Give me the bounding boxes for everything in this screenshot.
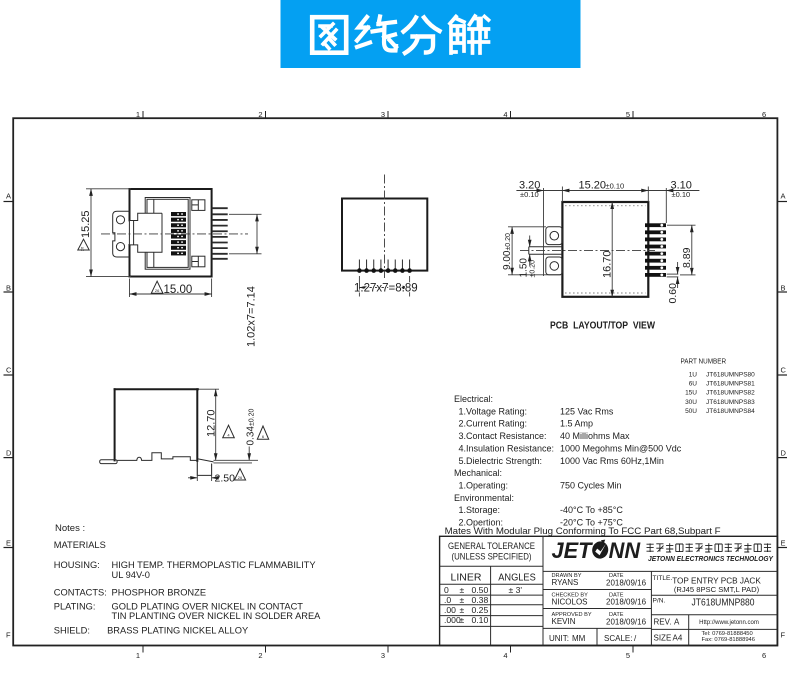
svg-text:±0.10: ±0.10 (606, 182, 625, 191)
svg-text:E: E (781, 539, 786, 548)
svg-text:±0.10: ±0.10 (520, 190, 539, 199)
svg-text:CONTACTS:: CONTACTS: (54, 588, 107, 598)
svg-text:12.70: 12.70 (206, 409, 218, 437)
svg-text:2018/09/16: 2018/09/16 (606, 598, 647, 607)
svg-text:0.10: 0.10 (472, 615, 489, 625)
svg-text:1.5 Amp: 1.5 Amp (560, 419, 593, 429)
svg-text:MATERIALS: MATERIALS (54, 540, 106, 550)
svg-text:1.Voltage Rating:: 1.Voltage Rating: (459, 406, 528, 416)
svg-text:JT618UMNPS84: JT618UMNPS84 (706, 408, 755, 415)
svg-text:16.70: 16.70 (602, 250, 614, 278)
svg-text:TITLE.: TITLE. (653, 575, 673, 582)
svg-text:E: E (6, 539, 11, 548)
svg-text:A: A (781, 192, 786, 201)
svg-text:P/N.: P/N. (653, 598, 666, 605)
svg-text:1: 1 (136, 651, 140, 660)
svg-text:50U: 50U (685, 408, 697, 415)
svg-text:2.Current Rating:: 2.Current Rating: (459, 419, 528, 429)
svg-text:Mates With Modular Plug Confor: Mates With Modular Plug Conforming To FC… (445, 526, 721, 537)
svg-text:4: 4 (503, 110, 507, 119)
svg-text:A: A (674, 618, 680, 627)
svg-text:6: 6 (762, 651, 766, 660)
svg-text:Environmental:: Environmental: (454, 493, 514, 503)
svg-text:JT618UMNPS82: JT618UMNPS82 (706, 390, 755, 397)
svg-text:8.89: 8.89 (681, 247, 693, 268)
svg-text:A4: A4 (673, 634, 683, 643)
svg-text:B: B (781, 284, 786, 293)
svg-text:BRASS PLATING NICKEL ALLOY: BRASS PLATING NICKEL ALLOY (107, 626, 248, 636)
svg-text:5.Dielectric Strength:: 5.Dielectric Strength: (459, 456, 543, 466)
svg-text:JT618UMNPS83: JT618UMNPS83 (706, 399, 755, 406)
svg-text:PHOSPHOR BRONZE: PHOSPHOR BRONZE (112, 588, 207, 598)
svg-text:F: F (6, 631, 11, 640)
svg-text:40 Milliohms Max: 40 Milliohms Max (560, 431, 630, 441)
svg-text:-40°C To +85°C: -40°C To +85°C (560, 505, 623, 515)
svg-text:125 Vac Rms: 125 Vac Rms (560, 406, 614, 416)
svg-text:C: C (6, 366, 12, 375)
svg-text:0.25: 0.25 (472, 605, 489, 615)
svg-text:750 Cycles Min: 750 Cycles Min (560, 480, 622, 490)
svg-text:0: 0 (444, 585, 449, 595)
svg-text:NICOLOS: NICOLOS (552, 598, 588, 607)
svg-text:JETONN ELECTRONICS TECHNOLOGY: JETONN ELECTRONICS TECHNOLOGY (648, 556, 774, 563)
svg-text:15U: 15U (685, 390, 697, 397)
svg-text:Notes :: Notes : (55, 523, 85, 534)
svg-text:JT618UMNPS80: JT618UMNPS80 (706, 372, 755, 379)
svg-text:0.38: 0.38 (472, 595, 489, 605)
svg-text:PCB LAYOUT/TOP VIEW: PCB LAYOUT/TOP VIEW (550, 320, 655, 332)
svg-text:A: A (6, 192, 11, 201)
svg-text:4: 4 (503, 651, 507, 660)
svg-text:±0.20: ±0.20 (530, 260, 537, 278)
svg-text:± 3': ± 3' (509, 585, 523, 595)
svg-text:D: D (781, 449, 787, 458)
svg-text:15.00: 15.00 (164, 284, 193, 296)
svg-text:15.25: 15.25 (80, 210, 92, 238)
svg-text:0.60: 0.60 (667, 283, 679, 304)
svg-text:UL 94V-0: UL 94V-0 (112, 570, 150, 580)
svg-text:3: 3 (381, 110, 385, 119)
svg-text:1.02x7=7.14: 1.02x7=7.14 (246, 286, 258, 347)
svg-text:PART NUMBER: PART NUMBER (681, 359, 727, 366)
svg-text:1U: 1U (689, 372, 698, 379)
svg-text:±: ± (460, 595, 465, 605)
svg-text:KEVIN: KEVIN (552, 617, 576, 626)
svg-text:SCALE:: SCALE: (604, 634, 632, 643)
svg-text:PLATING:: PLATING: (54, 602, 96, 612)
svg-text:NN: NN (609, 538, 642, 563)
svg-text:6: 6 (762, 110, 766, 119)
svg-text:2018/09/16: 2018/09/16 (606, 579, 647, 588)
svg-text:Mechanical:: Mechanical: (454, 468, 502, 478)
svg-text:1000 Megohms Min@500 Vdc: 1000 Megohms Min@500 Vdc (560, 443, 682, 453)
svg-text:TIN PLANTING OVER NICKEL IN SO: TIN PLANTING OVER NICKEL IN SOLDER AREA (112, 611, 322, 621)
svg-text:±: ± (460, 615, 465, 625)
svg-text:26: 26 (155, 288, 160, 293)
svg-text:5: 5 (626, 110, 630, 119)
svg-text:B: B (6, 284, 11, 293)
svg-text:6U: 6U (689, 381, 698, 388)
svg-text:HIGH TEMP. THERMOPLASTIC FLAMM: HIGH TEMP. THERMOPLASTIC FLAMMABILITY (112, 560, 316, 570)
svg-text:JT618UMNPS81: JT618UMNPS81 (706, 381, 755, 388)
svg-text:1000 Vac Rms 60Hz,1Min: 1000 Vac Rms 60Hz,1Min (560, 456, 664, 466)
svg-text:(RJ45 8PSC SMT,L PAD): (RJ45 8PSC SMT,L PAD) (674, 585, 760, 594)
svg-text:REV.: REV. (654, 618, 672, 627)
svg-text:JET: JET (552, 538, 594, 563)
svg-text:3.Contact Resistance:: 3.Contact Resistance: (459, 431, 547, 441)
svg-text:2: 2 (258, 110, 262, 119)
svg-text:1.50: 1.50 (519, 258, 530, 278)
svg-text:±: ± (460, 585, 465, 595)
svg-text:Http://www.jetonn.com: Http://www.jetonn.com (699, 620, 759, 626)
svg-text:(UNLESS SPECIFIED): (UNLESS SPECIFIED) (452, 552, 532, 563)
svg-text:2018/09/16: 2018/09/16 (606, 618, 647, 627)
svg-text:2: 2 (258, 651, 262, 660)
svg-text:26: 26 (80, 246, 85, 251)
svg-text:±: ± (460, 605, 465, 615)
svg-text:4.Insulation Resistance:: 4.Insulation Resistance: (459, 443, 555, 453)
svg-text:1.Operating:: 1.Operating: (459, 480, 509, 490)
svg-text:Fax: 0769-81888946: Fax: 0769-81888946 (702, 637, 756, 643)
svg-text:GOLD PLATING OVER NICKEL IN CO: GOLD PLATING OVER NICKEL IN CONTACT (112, 602, 304, 612)
svg-text:GENERAL TOLERANCE: GENERAL TOLERANCE (448, 541, 535, 552)
svg-text:26: 26 (238, 475, 243, 480)
svg-text:MM: MM (572, 634, 586, 643)
svg-text:±0.10: ±0.10 (672, 190, 691, 199)
svg-text:5: 5 (626, 651, 630, 660)
svg-text:SIZE: SIZE (654, 634, 672, 643)
svg-text:1.Storage:: 1.Storage: (459, 505, 501, 515)
svg-text:3: 3 (381, 651, 385, 660)
svg-text:Electrical:: Electrical: (454, 394, 493, 404)
svg-text:SHIELD:: SHIELD: (54, 626, 90, 636)
svg-text:ANGLES: ANGLES (498, 572, 536, 584)
svg-text:.000: .000 (444, 615, 461, 625)
svg-text:F: F (781, 631, 786, 640)
svg-text:.0: .0 (444, 595, 451, 605)
svg-text:30U: 30U (685, 399, 697, 406)
svg-text:C: C (781, 366, 787, 375)
svg-text:JT618UMNP880: JT618UMNP880 (692, 597, 755, 609)
svg-text:UNIT:: UNIT: (549, 634, 569, 643)
svg-text:HOUSING:: HOUSING: (54, 560, 100, 570)
svg-text:.00: .00 (444, 605, 456, 615)
svg-text:D: D (6, 449, 12, 458)
svg-text:2.50: 2.50 (215, 473, 236, 485)
svg-text:0.50: 0.50 (472, 585, 489, 595)
svg-text:15.20: 15.20 (579, 180, 607, 192)
svg-text:LINER: LINER (451, 572, 482, 584)
svg-text:1.27x7=8.89: 1.27x7=8.89 (354, 283, 418, 295)
svg-text:1: 1 (136, 110, 140, 119)
svg-text:RYANS: RYANS (552, 578, 579, 587)
